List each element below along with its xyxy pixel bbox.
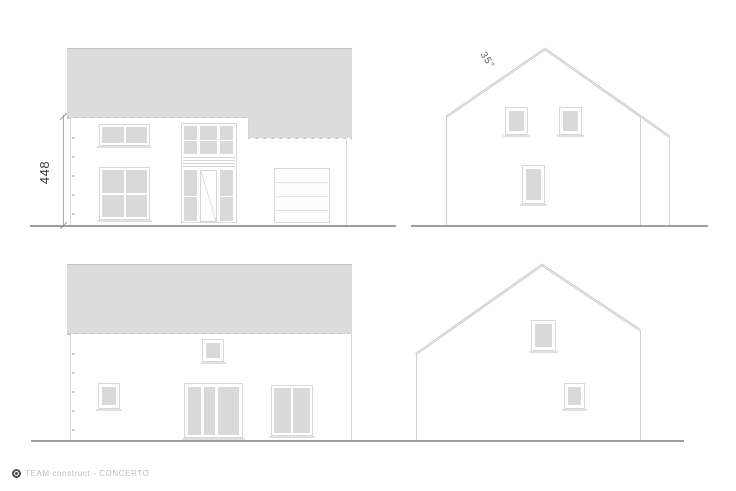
window-mullion — [124, 127, 126, 143]
window-glass — [568, 387, 581, 405]
window-sill — [557, 135, 584, 137]
front-upper-window-glass — [102, 127, 147, 143]
window-sill — [200, 362, 226, 364]
rear-left-window — [98, 383, 120, 409]
window-sill — [269, 436, 315, 438]
front-upper-window-sill — [97, 146, 152, 148]
garage-door-panel-line — [276, 196, 328, 197]
window-sill — [529, 351, 558, 353]
rear-facade-masonry-ticks — [72, 336, 75, 438]
door-glass-pane — [218, 387, 239, 435]
balustrade-line — [183, 166, 235, 167]
side-left-upper-window — [531, 320, 556, 351]
height-dimension-line — [63, 115, 64, 226]
front-roof-garage-extension — [247, 116, 352, 138]
window-sill — [562, 409, 587, 411]
side-right-ground-line — [411, 225, 708, 227]
rear-right-window — [271, 385, 313, 436]
front-ground-line — [30, 225, 396, 227]
front-lower-window — [99, 167, 150, 220]
side-right-upper-window-2 — [559, 107, 582, 135]
elevation-drawing-sheet: 448 35° — [0, 0, 736, 491]
side-left-lower-window — [564, 383, 585, 409]
balustrade-line — [183, 160, 235, 161]
window-glass — [206, 343, 220, 358]
rear-roof — [67, 264, 352, 334]
side-left-roof-outline — [416, 265, 640, 354]
side-left-right-wall — [640, 330, 641, 440]
garage-door-panel-line — [276, 210, 328, 211]
window-glass — [509, 111, 524, 131]
front-facade-masonry-ticks — [72, 120, 75, 224]
window-sill — [520, 204, 547, 206]
balustrade-line — [183, 163, 235, 164]
window-sill — [503, 135, 530, 137]
door-glass-pane — [188, 387, 201, 435]
glazing-transom — [220, 196, 233, 197]
teamconstruct-logo-icon — [12, 469, 21, 478]
side-right-left-wall — [446, 117, 447, 226]
glazing-transom — [184, 196, 197, 197]
garage-door — [274, 168, 330, 223]
side-right-garage-wall — [669, 137, 670, 226]
front-upper-window — [99, 124, 150, 146]
window-glass — [102, 387, 116, 405]
side-right-roof-outline — [446, 49, 670, 137]
front-glazed-entrance — [181, 123, 237, 223]
side-right-lower-window — [522, 165, 545, 204]
window-glass — [535, 324, 552, 347]
window-glass — [563, 111, 578, 131]
side-right-main-wall — [640, 116, 641, 226]
rear-patio-door — [184, 383, 243, 438]
window-sill — [96, 409, 122, 411]
logo-inner-ring — [14, 471, 19, 476]
entrance-door — [200, 170, 217, 222]
front-roof — [67, 48, 352, 118]
bottom-ground-line — [31, 440, 684, 442]
rear-upper-window — [202, 339, 224, 362]
window-glass — [526, 169, 541, 200]
window-mullion — [102, 193, 147, 195]
footer-brand-text: TEAM construct - CONCERTO — [25, 469, 150, 478]
front-lower-window-glass — [102, 170, 147, 217]
window-mullion — [291, 388, 293, 433]
window-glass — [274, 388, 310, 433]
glazing-transom — [184, 140, 233, 141]
door-glass-pane — [204, 387, 215, 435]
height-dimension-label: 448 — [37, 161, 52, 184]
garage-door-panel-line — [276, 182, 328, 183]
side-right-upper-window-1 — [505, 107, 528, 135]
side-left-roof-inline — [416, 265, 640, 354]
side-left-left-wall — [416, 354, 417, 440]
balustrade-line — [183, 157, 235, 158]
front-lower-window-sill — [97, 220, 152, 222]
